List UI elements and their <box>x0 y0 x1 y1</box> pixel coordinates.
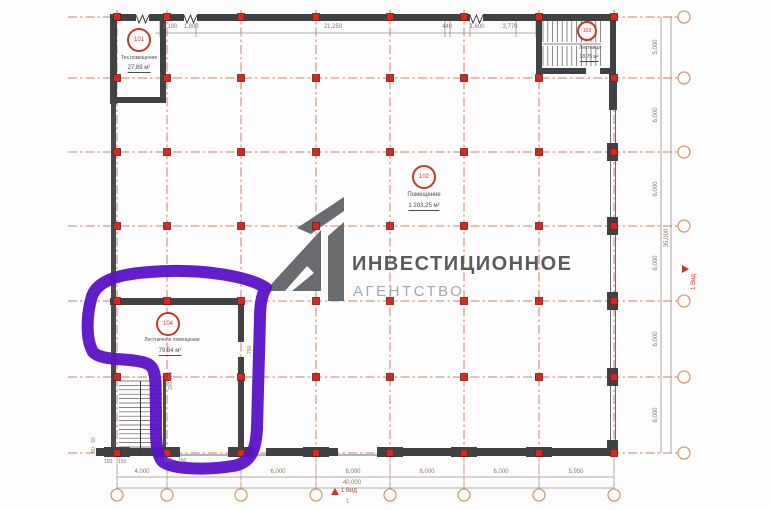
room-name-104: Лестничное помещение <box>144 337 200 343</box>
room-badge-102: 102 <box>412 165 436 189</box>
dim-bottom-5: 6,000 <box>493 469 508 475</box>
room-area-102: 1 203,25 м² <box>408 203 439 211</box>
agency-logo-icon <box>265 197 344 301</box>
dim-top-4: 440 <box>442 24 452 30</box>
floor-plan-canvas: 101 Тех.помещение 27,89 м² 102 Помещение… <box>0 0 770 510</box>
dim-bottom-2: 6,000 <box>270 469 285 475</box>
dim-bottom-3: 6,000 <box>345 469 360 475</box>
dim-small-50-b: 50 <box>91 447 97 453</box>
room-badge-101: 101 <box>127 28 151 52</box>
dim-small-750: 750 <box>247 346 253 354</box>
room-area-101: 27,89 м² <box>128 65 151 73</box>
room-area-103: 18,75 м² <box>579 54 598 62</box>
dim-small-150-a: 150 <box>104 459 112 465</box>
room-name-101: Тех.помещение <box>121 55 157 61</box>
grid-intersection-markers <box>114 14 618 457</box>
dim-small-150-b: 150 <box>118 459 126 465</box>
dim-right-1: 5,000 <box>653 39 659 54</box>
dim-right-2: 6,000 <box>653 107 659 122</box>
dim-top-3: 21,250 <box>324 24 342 30</box>
view-marker-label-bottom: 1 Вид <box>341 488 357 494</box>
dim-bottom-1: 4,000 <box>134 469 149 475</box>
room-area-104: 79,84 м² <box>159 348 182 356</box>
view-marker-number-bottom: 1 <box>346 499 349 505</box>
dim-bottom-total: 40,000 <box>343 480 361 486</box>
dim-right-3: 6,000 <box>653 181 659 196</box>
dim-top-6: 3,770 <box>502 24 517 30</box>
dim-right-6: 6,000 <box>653 407 659 422</box>
view-marker-label-right: 1 Вид <box>691 274 697 290</box>
dim-small-150-c: 150 <box>164 458 172 464</box>
dim-small-50-a: 50 <box>91 437 97 443</box>
dim-top-5: 1,600 <box>469 24 484 30</box>
dim-small-200-100: 200,100 <box>168 372 174 390</box>
room-name-102: Помещение <box>407 192 440 198</box>
room-badge-103: 103 <box>577 21 597 41</box>
watermark-line1: ИНВЕСТИЦИОННОЕ <box>352 253 572 276</box>
dim-right-5: 6,000 <box>653 331 659 346</box>
room-badge-104: 104 <box>156 312 180 336</box>
dim-bottom-4: 6,000 <box>419 469 434 475</box>
dim-bottom-6: 5,950 <box>568 469 583 475</box>
room-name-103: Лестница <box>579 45 601 51</box>
dim-small-150-d: 150 <box>178 458 186 464</box>
dim-right-4: 6,000 <box>653 255 659 270</box>
dim-top-2: 1,800 <box>183 24 198 30</box>
watermark-line2: АГЕНТСТВО <box>353 283 464 300</box>
dim-right-total: 35,000 <box>664 229 670 247</box>
dim-top-1: 1,100 <box>162 24 177 30</box>
